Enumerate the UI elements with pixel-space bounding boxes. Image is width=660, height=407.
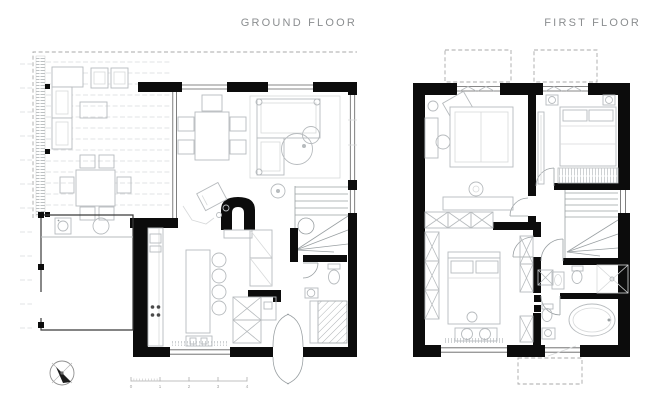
appliance-column (250, 230, 272, 286)
first-floor-title: FIRST FLOOR (544, 17, 641, 29)
bedroom-2 (538, 95, 618, 184)
floor-plan-sheet: GROUND FLOOR FIRST FLOOR (0, 0, 660, 407)
outdoor-chairs (91, 68, 128, 88)
dining-set (178, 95, 246, 160)
side-planting-ticks (20, 64, 32, 328)
toilet-bowl (542, 309, 552, 322)
outdoor-dining-set (60, 155, 131, 220)
scale-label-0: 0 (130, 384, 133, 389)
outdoor-sofa (52, 67, 83, 149)
desk (443, 197, 513, 210)
scale-label-4: 4 (246, 384, 249, 389)
window (543, 83, 588, 95)
bed (450, 107, 513, 167)
bar-stools (212, 253, 226, 315)
kitchen-island (186, 250, 210, 333)
kitchen (148, 228, 272, 346)
mudroom-bench (318, 301, 347, 343)
side-desk (425, 118, 438, 158)
window-sill-hatch (171, 341, 229, 346)
ground-floor-plan (20, 52, 357, 384)
floor-plans-canvas: GROUND FLOOR FIRST FLOOR (0, 0, 660, 407)
bed (560, 107, 616, 166)
bathtub (569, 304, 615, 336)
bathroom (538, 265, 628, 339)
toilet-tank (328, 264, 340, 269)
staircase-first (565, 190, 618, 258)
terrace-glazing (173, 92, 177, 218)
north-arrow-icon (50, 361, 74, 385)
entry-hall (233, 297, 347, 384)
wc (303, 263, 340, 298)
living-dining-room (178, 95, 340, 238)
closet-hatch (558, 168, 618, 183)
outdoor-coffee-table (80, 102, 107, 118)
window (268, 82, 313, 92)
window (348, 95, 357, 180)
floor-lamp (428, 101, 438, 111)
ground-interior (248, 228, 347, 302)
planting-strip (36, 56, 45, 216)
wardrobe-right (520, 236, 533, 342)
window (621, 188, 626, 213)
window (350, 190, 354, 213)
annex-garage (38, 212, 133, 330)
scale-label-1: 1 (159, 384, 162, 389)
ground-floor-title: GROUND FLOOR (241, 17, 357, 29)
window (182, 82, 227, 92)
entrance-double-door (273, 314, 303, 384)
headboard (448, 252, 500, 258)
corner-sofa (256, 99, 320, 175)
window-sill-hatch (443, 338, 505, 343)
bed (448, 258, 500, 324)
plant (469, 182, 483, 196)
wardrobe-strip (425, 232, 439, 319)
staircase-ground (295, 186, 348, 252)
entry-closet (233, 297, 276, 343)
scale-bar: 0 1 2 3 4 (130, 377, 249, 389)
washing-machine (55, 218, 71, 234)
window (170, 341, 230, 354)
bedroom-1 (425, 91, 513, 228)
wardrobe-row (425, 212, 493, 228)
toilet-bowl (329, 270, 340, 284)
scale-label-2: 2 (188, 384, 191, 389)
window (545, 346, 580, 356)
toilet-bowl (572, 271, 582, 284)
scale-label-3: 3 (217, 384, 220, 389)
master-bedroom (425, 232, 533, 342)
first-floor-plan (413, 50, 630, 384)
stair-newel (298, 218, 314, 234)
